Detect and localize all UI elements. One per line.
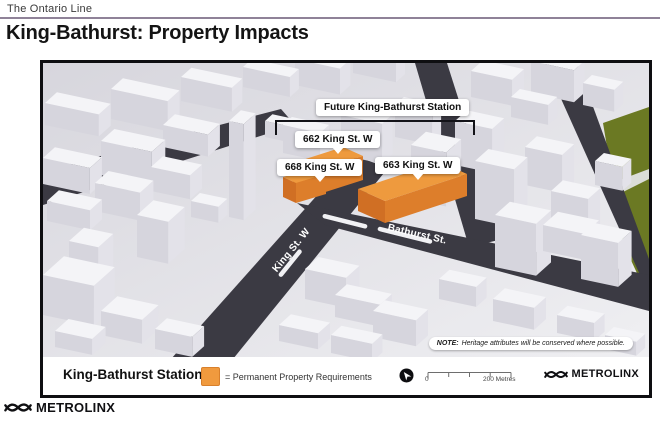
building-block bbox=[495, 215, 536, 276]
metrolinx-logo-icon bbox=[4, 401, 32, 414]
page-title: King-Bathurst: Property Impacts bbox=[6, 22, 309, 45]
swatch-meaning: = Permanent Property Requirements bbox=[225, 372, 372, 382]
note-text: Heritage attributes will be conserved wh… bbox=[462, 340, 625, 347]
orange-swatch bbox=[201, 367, 220, 386]
map-view: Future King-Bathurst Station 662 King St… bbox=[43, 63, 649, 357]
metrolinx-logo-icon bbox=[544, 369, 568, 380]
building-label-668: 668 King St. W bbox=[277, 159, 362, 176]
building-label-663: 663 King St. W bbox=[375, 157, 460, 174]
building-block bbox=[137, 215, 168, 264]
map-panel: Future King-Bathurst Station 662 King St… bbox=[40, 60, 652, 398]
note-prefix: NOTE: bbox=[437, 340, 459, 347]
compass-icon bbox=[399, 368, 414, 383]
legend-brand: METROLINX bbox=[544, 368, 639, 380]
metrolinx-wordmark: METROLINX bbox=[36, 400, 115, 415]
station-callout: Future King-Bathurst Station bbox=[316, 99, 469, 116]
slide: The Ontario Line King-Bathurst: Property… bbox=[0, 0, 660, 422]
legend-bar: King-Bathurst Station = Permanent Proper… bbox=[43, 357, 649, 395]
building-block bbox=[244, 113, 256, 220]
scale-bar: 0 200 Metres bbox=[427, 367, 527, 389]
legend-station-name: King-Bathurst Station bbox=[63, 367, 203, 382]
scale-end-label: 200 Metres bbox=[483, 376, 516, 383]
building-block bbox=[229, 121, 244, 220]
scale-start-label: 0 bbox=[425, 376, 429, 383]
note-box: NOTE:Heritage attributes will be conserv… bbox=[429, 337, 633, 350]
building-label-662: 662 King St. W bbox=[295, 131, 380, 148]
deck-title: The Ontario Line bbox=[7, 3, 92, 15]
header-rule bbox=[0, 17, 660, 19]
metrolinx-wordmark: METROLINX bbox=[572, 368, 639, 380]
building-block bbox=[581, 235, 618, 287]
footer-brand: METROLINX bbox=[4, 400, 115, 415]
